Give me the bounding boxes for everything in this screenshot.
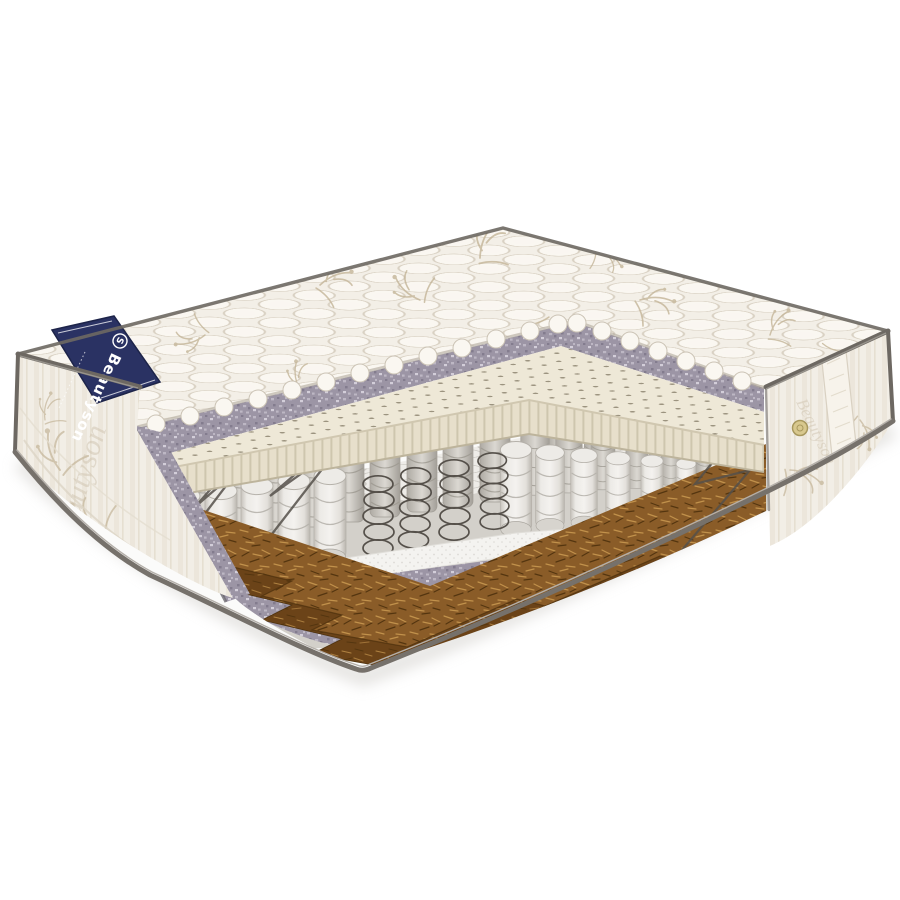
vent-eyelet: air vent eyelet	[793, 421, 808, 436]
product-photo-stage: Product photo: orthopedic spring mattres…	[0, 0, 900, 900]
mattress-cutaway-illustration: Product photo: orthopedic spring mattres…	[0, 0, 900, 900]
